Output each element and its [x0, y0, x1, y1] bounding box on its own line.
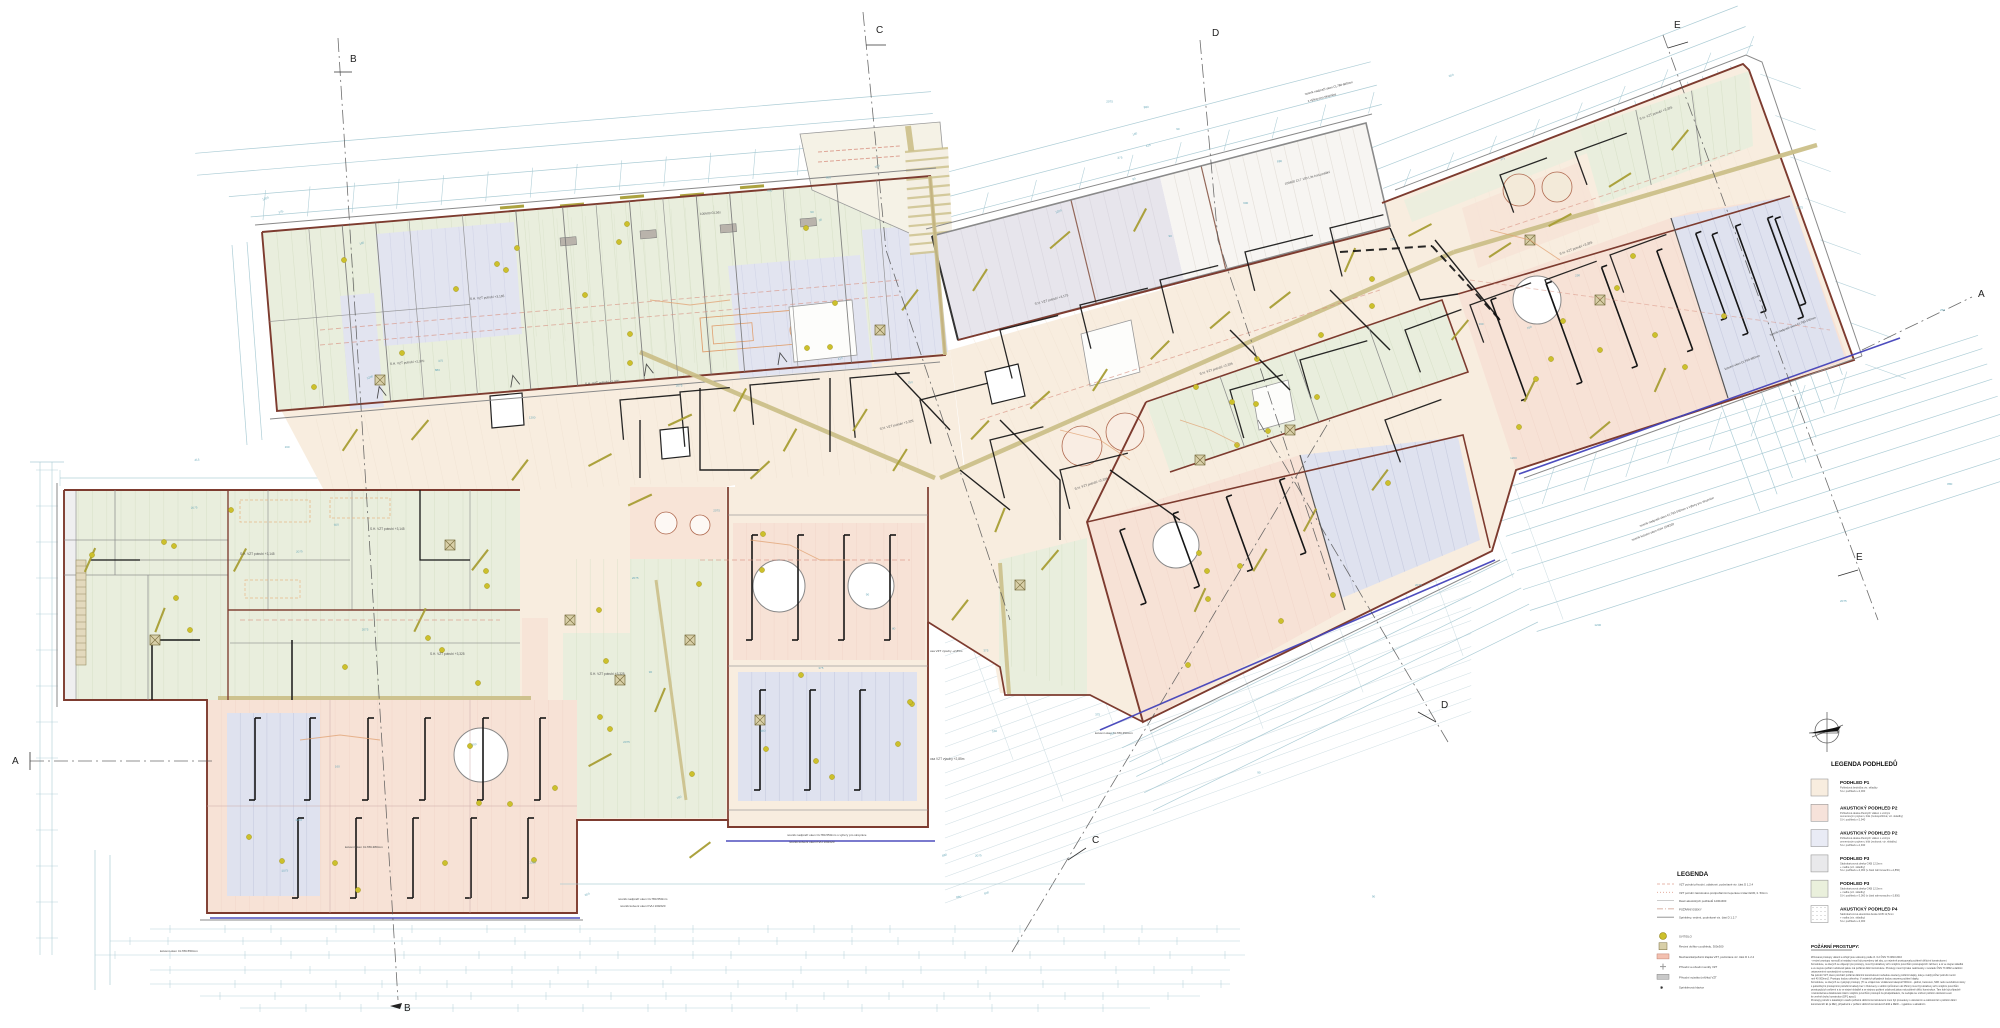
svg-text:2075: 2075 [1796, 205, 1803, 209]
svg-text:1200: 1200 [1594, 623, 1601, 627]
svg-text:2075: 2075 [676, 384, 683, 388]
svg-text:375: 375 [818, 666, 823, 670]
svg-text:90: 90 [1257, 770, 1261, 774]
svg-text:E: E [1856, 552, 1863, 563]
svg-text:POŽÁRNÍ ÚSEKY: POŽÁRNÍ ÚSEKY [1679, 906, 1702, 911]
svg-text:375: 375 [1095, 712, 1100, 716]
svg-text:Pohledová deska dřevitých vlák: Pohledová deska dřevitých vláken s volný… [1840, 836, 1890, 840]
svg-text:2075: 2075 [632, 576, 639, 580]
svg-text:375: 375 [1117, 155, 1123, 159]
svg-text:1200: 1200 [529, 861, 536, 865]
svg-text:160: 160 [285, 445, 290, 449]
svg-text:Přívodní a odvodní ventily VZT: Přívodní a odvodní ventily VZT [1679, 965, 1718, 969]
svg-text:konstrukcích EI (a REI), přípa: konstrukcích EI (a REI), případně E v po… [1811, 1003, 1925, 1006]
svg-text:S.H. podhledu +3,000: S.H. podhledu +3,000 [1840, 919, 1866, 923]
svg-text:2075: 2075 [1840, 599, 1847, 603]
svg-text:160: 160 [335, 764, 340, 768]
svg-text:2075: 2075 [191, 505, 198, 510]
svg-text:S.H. VZT potrubí +3,145: S.H. VZT potrubí +3,145 [370, 527, 405, 531]
svg-text:S.H. podhledu +3,060 (v části: S.H. podhledu +3,060 (v části zahrnovací… [1840, 868, 1900, 872]
svg-text:kotvení oken CL780-380mm: kotvení oken CL780-380mm [345, 845, 383, 849]
svg-text:AKUSTICKÝ PODHLED P4: AKUSTICKÝ PODHLED P4 [1840, 906, 1898, 912]
svg-text:Prostupy potrubí s katalickým: Prostupy potrubí s katalickým osazlo pož… [1811, 999, 1957, 1002]
svg-text:ustanoveními souvisejícími s p: ustanoveními souvisejícími s prostupy. [1811, 970, 1854, 973]
svg-text:600: 600 [334, 522, 340, 526]
svg-text:+ malba (viz. skladby): + malba (viz. skladby) [1840, 890, 1865, 894]
svg-text:880: 880 [760, 729, 766, 733]
svg-text:PODHLED P3: PODHLED P3 [1840, 881, 1870, 886]
svg-text:2075: 2075 [713, 508, 720, 512]
svg-text:cementovým pojivem, bílá (zvuk: cementovým pojivem, bílá (zvuková; viz. … [1840, 840, 1897, 844]
svg-text:a ve stejnou požární odolností: a ve stejnou požární odolností jakou má … [1811, 967, 1963, 970]
svg-text:než 40 000mm2. Prostupy budou: než 40 000mm2. Prostupy budou utěsněny. … [1811, 978, 1919, 981]
svg-text:160: 160 [1479, 322, 1484, 326]
svg-text:2075: 2075 [362, 628, 369, 632]
svg-text:880: 880 [767, 188, 772, 192]
svg-text:2075: 2075 [281, 868, 288, 873]
svg-text:2075: 2075 [623, 740, 630, 744]
svg-text:S.H. podhledu +3,060 (v části: S.H. podhledu +3,060 (v části zahrnovací… [1840, 894, 1900, 898]
svg-text:Sádrokartonová akustická deska: Sádrokartonová akustická deska GKB 12,5m… [1840, 912, 1894, 916]
svg-text:PODHLED P1: PODHLED P1 [1840, 780, 1870, 785]
svg-text:Konstrukce, ve kterých se obje: Konstrukce, ve kterých se objevují tyto … [1811, 963, 1964, 966]
svg-text:880: 880 [1144, 105, 1150, 109]
svg-text:nosník kotvení oken KVH 100/2: nosník kotvení oken KVH 100/220 [789, 840, 835, 844]
svg-text:nosník kotvení oken KVH 100/2: nosník kotvení oken KVH 100/220 [620, 904, 666, 908]
svg-text:POŽÁRNÍ PROSTUPY:: POŽÁRNÍ PROSTUPY: [1811, 942, 1860, 949]
svg-text:VZT potrubí zaizolováno protip: VZT potrubí zaizolováno protipožárními l… [1679, 891, 1768, 895]
svg-text:Mechanická/požární klapka VZT,: Mechanická/požární klapka VZT, podmítané… [1679, 955, 1755, 959]
svg-text:2075: 2075 [1106, 100, 1113, 104]
svg-text:Sprinklerová hlavice: Sprinklerová hlavice [1679, 986, 1704, 990]
svg-text:90: 90 [1372, 895, 1376, 899]
svg-text:Sádrokartonová deska GKB 12,5m: Sádrokartonová deska GKB 12,5mm [1840, 861, 1882, 865]
svg-text:cementovým pojivem, bílá (zvuk: cementovým pojivem, bílá (zvukopohltivá;… [1840, 814, 1903, 818]
svg-text:D: D [1212, 28, 1219, 39]
svg-text:600: 600 [826, 176, 831, 180]
svg-text:S.H. VZT potrubí +3,325: S.H. VZT potrubí +3,325 [430, 652, 465, 656]
svg-text:S.H. VZT potrubí +3,145: S.H. VZT potrubí +3,145 [240, 552, 275, 556]
svg-text:A: A [12, 756, 19, 767]
svg-text:250: 250 [1940, 308, 1945, 312]
svg-text:1200: 1200 [295, 818, 302, 822]
svg-text:250: 250 [1575, 273, 1581, 277]
svg-text:+ malba (viz. skladby): + malba (viz. skladby) [1840, 915, 1865, 919]
svg-text:B: B [350, 54, 357, 65]
svg-text:C: C [876, 25, 883, 36]
svg-text:2075: 2075 [975, 853, 982, 858]
svg-text:90: 90 [866, 593, 870, 597]
svg-text:+ malba (viz. skladby): + malba (viz. skladby) [1840, 865, 1865, 869]
svg-text:i zaměnitelná a dotahovaně čás: i zaměnitelná a dotahovaně část k vnější… [1811, 992, 1952, 995]
svg-text:250: 250 [908, 380, 914, 384]
svg-text:880: 880 [1277, 159, 1283, 163]
svg-text:880: 880 [435, 368, 440, 372]
svg-text:Na potrubí VZT, které prochází: Na potrubí VZT, které prochází požárně d… [1811, 974, 1956, 977]
svg-text:Zřizované prostupy utěsnit a s: Zřizované prostupy utěsnit a střojiz jso… [1811, 956, 1902, 959]
svg-text:AKUSTICKÝ PODHLED P2: AKUSTICKÝ PODHLED P2 [1840, 830, 1898, 836]
svg-text:S.H. podhledu +2,940: S.H. podhledu +2,940 [1840, 818, 1866, 822]
svg-text:nosník nadpraží oken CL780-55: nosník nadpraží oken CL780-550mm [618, 897, 668, 901]
svg-text:1200: 1200 [529, 416, 536, 420]
svg-text:415: 415 [194, 458, 200, 462]
svg-text:2075: 2075 [1415, 583, 1422, 587]
svg-text:PODHLED P3: PODHLED P3 [1840, 856, 1870, 861]
svg-text:90: 90 [1176, 127, 1180, 131]
svg-text:250: 250 [1390, 237, 1396, 241]
svg-text:AKUSTICKÝ PODHLED P2: AKUSTICKÝ PODHLED P2 [1840, 804, 1898, 810]
svg-text:Pohledová deska dřevitých vlák: Pohledová deska dřevitých vláken s volný… [1840, 811, 1890, 815]
svg-text:Rastr akustických podhledů 120: Rastr akustických podhledů 1200x600 [1679, 899, 1727, 903]
svg-text:880: 880 [956, 895, 962, 899]
svg-text:E: E [1674, 20, 1681, 31]
svg-text:S.H. podhledu +3,000: S.H. podhledu +3,000 [1840, 789, 1866, 793]
svg-text:1200: 1200 [1510, 456, 1517, 460]
svg-text:Konstrukce, ve kterých se vysk: Konstrukce, ve kterých se vyskytují pros… [1811, 981, 1966, 984]
svg-text:VZT potrubí přívodní, odtahové: VZT potrubí přívodní, odtahové, podmítan… [1679, 883, 1754, 887]
svg-text:nosník nadpraží oken CL780-55: nosník nadpraží oken CL780-550mm s výřez… [787, 833, 867, 837]
svg-text:LEGENDA: LEGENDA [1677, 871, 1709, 878]
svg-text:A: A [1978, 289, 1985, 300]
svg-text:S.H. podhledu +2,940: S.H. podhledu +2,940 [1840, 843, 1866, 847]
svg-text:Sádrokartonová deska GKB 12,5m: Sádrokartonová deska GKB 12,5mm [1840, 887, 1882, 891]
svg-text:C: C [1092, 835, 1099, 846]
svg-text:90: 90 [1169, 234, 1173, 238]
svg-text:600: 600 [471, 742, 477, 746]
svg-text:160: 160 [992, 729, 998, 733]
svg-text:kotvení oken CL780-550mm: kotvení oken CL780-550mm [160, 949, 198, 953]
svg-text:375: 375 [438, 359, 444, 363]
svg-text:B: B [404, 1003, 411, 1014]
svg-text:375: 375 [983, 648, 988, 652]
svg-text:osa VZT výsuhy +2,85m: osa VZT výsuhy +2,85m [930, 757, 965, 761]
svg-text:s jednotlivými prostupními pot: s jednotlivými prostupními potrubími kab… [1811, 985, 1959, 988]
svg-text:prostupujících zařízení a to v: prostupujících zařízení a to ve stejné s… [1811, 988, 1961, 991]
svg-text:SVITIDLO: SVITIDLO [1679, 935, 1693, 939]
svg-text:LEGENDA PODHLEDŮ: LEGENDA PODHLEDŮ [1831, 760, 1898, 768]
svg-text:S.H. VZT potrubí +3,325: S.H. VZT potrubí +3,325 [590, 672, 625, 676]
svg-text:Přívodní vyústka (mřížka) VZT: Přívodní vyústka (mřížka) VZT [1679, 975, 1717, 979]
svg-text:Sprinklery, vedení, podmítané: Sprinklery, vedení, podmítané viz. část … [1679, 916, 1737, 920]
svg-text:600: 600 [1243, 201, 1248, 205]
svg-text:Revizní dvířka v podhledu, 300: Revizní dvířka v podhledu, 300x300 [1679, 945, 1724, 949]
svg-text:880: 880 [1947, 482, 1952, 486]
svg-text:D: D [1441, 700, 1448, 711]
svg-text:Pohledová bednička viz. skladb: Pohledová bednička viz. skladby [1840, 786, 1878, 790]
svg-text:2075: 2075 [296, 549, 303, 554]
svg-text:- revizní prostupy rozvodů a i: - revizní prostupy rozvodů a instalací m… [1811, 960, 1947, 963]
svg-text:90: 90 [649, 670, 653, 674]
svg-text:osa VZT výsuhy +2,85m: osa VZT výsuhy +2,85m [930, 649, 963, 653]
svg-text:90: 90 [810, 210, 814, 214]
svg-text:ke změně druhu konstrukce (DP1: ke změně druhu konstrukce (DP1 apod.) [1811, 996, 1856, 999]
